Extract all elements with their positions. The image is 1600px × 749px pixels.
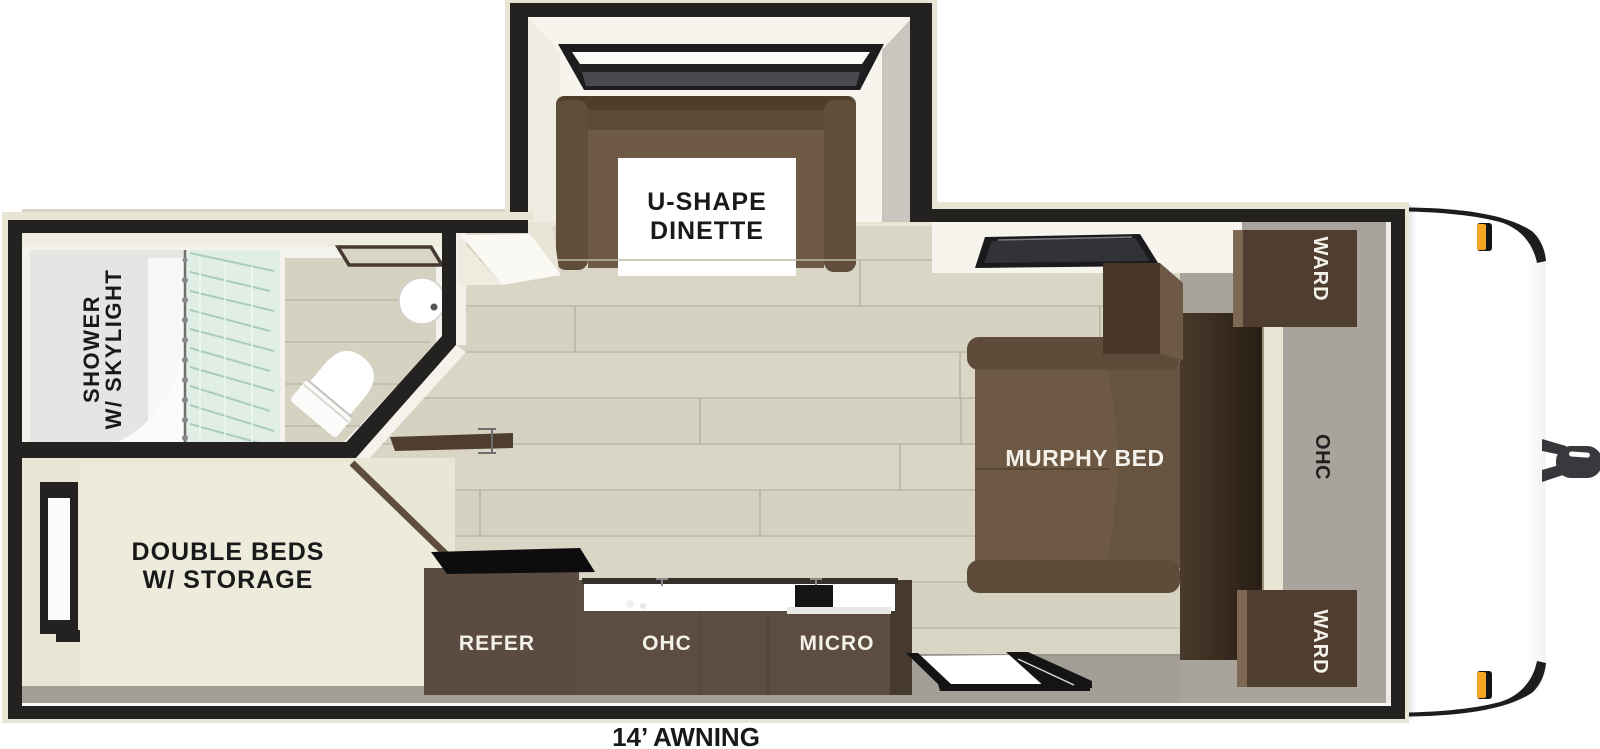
svg-text:REFER: REFER (459, 632, 535, 655)
svg-text:MICRO: MICRO (800, 632, 875, 655)
svg-text:WARD: WARD (1309, 236, 1331, 301)
svg-text:MURPHY BED: MURPHY BED (1005, 445, 1164, 471)
svg-text:14’ AWNING: 14’ AWNING (612, 722, 760, 749)
svg-text:DOUBLE BEDS: DOUBLE BEDS (132, 538, 325, 566)
svg-text:DINETTE: DINETTE (650, 217, 764, 245)
svg-text:OHC: OHC (1311, 434, 1333, 480)
svg-text:W/ STORAGE: W/ STORAGE (143, 566, 314, 594)
svg-text:U-SHAPE: U-SHAPE (647, 188, 767, 216)
svg-text:OHC: OHC (642, 632, 692, 655)
svg-text:WARD: WARD (1309, 609, 1331, 674)
